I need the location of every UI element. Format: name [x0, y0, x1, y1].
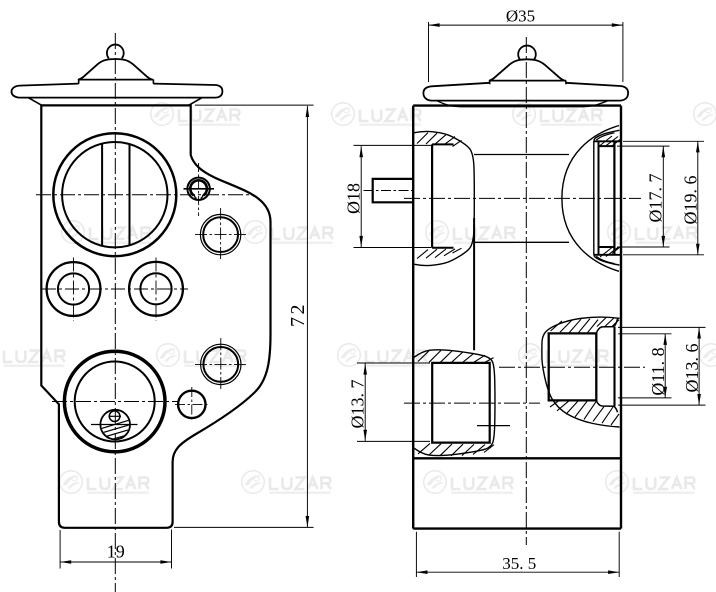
svg-text:72: 72	[287, 302, 309, 327]
svg-text:Ø13. 7: Ø13. 7	[348, 380, 368, 429]
svg-text:Ø19. 6: Ø19. 6	[681, 176, 701, 225]
svg-text:Ø18: Ø18	[344, 183, 364, 214]
svg-text:35. 5: 35. 5	[502, 554, 536, 573]
svg-text:Ø13. 6: Ø13. 6	[682, 344, 702, 393]
svg-text:Ø17. 7: Ø17. 7	[646, 174, 666, 223]
svg-text:Ø35: Ø35	[506, 7, 535, 26]
svg-text:Ø11. 8: Ø11. 8	[648, 347, 668, 395]
svg-text:19: 19	[107, 541, 125, 561]
